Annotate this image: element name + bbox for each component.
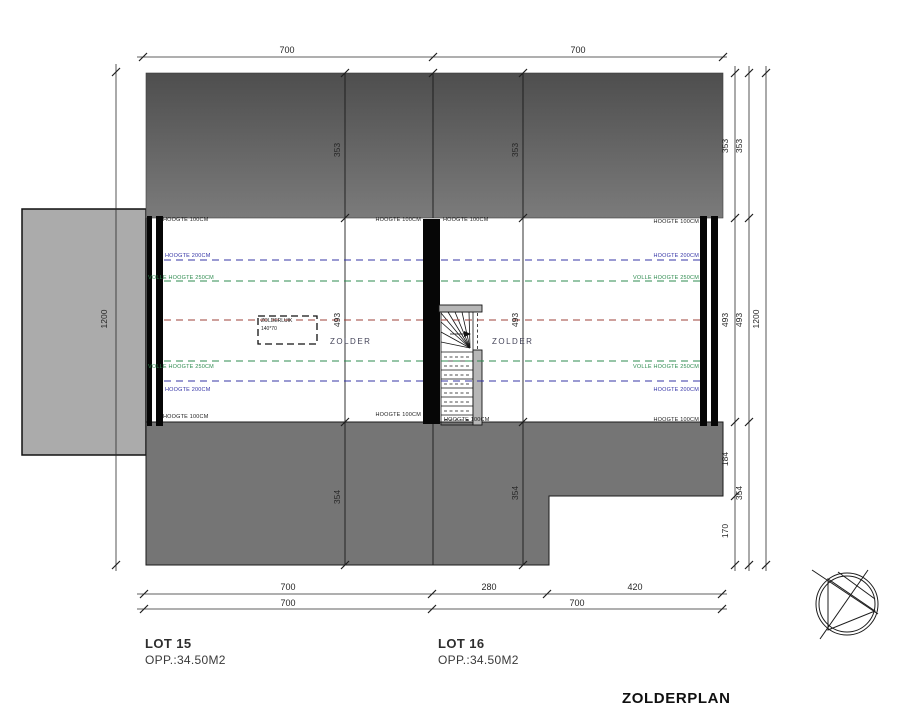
dim-roofbottom-354-right: 354 bbox=[510, 486, 520, 500]
lot16-right-wall-outer bbox=[711, 216, 718, 426]
attic-plan-drawing: ZOLDERLUIK 140*70 ZOLDER ZOLDER HOOGTE 1… bbox=[0, 0, 904, 728]
h250-label: VOLLE HOOGTE 250CM bbox=[633, 364, 699, 370]
h100-label: HOOGTE 100CM bbox=[654, 219, 700, 225]
lot16-title: LOT 16 bbox=[438, 636, 484, 651]
dim-bottom-700: 700 bbox=[280, 582, 295, 592]
dim-top-700-right: 700 bbox=[570, 45, 585, 55]
staircase bbox=[439, 305, 482, 425]
h100-label: HOOGTE 100CM bbox=[444, 417, 490, 423]
dim-floor-493-right: 493 bbox=[510, 313, 520, 327]
dim-right-184: 184 bbox=[720, 452, 730, 466]
dim-right2-493: 493 bbox=[734, 313, 744, 327]
h250-label: VOLLE HOOGTE 250CM bbox=[148, 364, 214, 370]
h100-label: HOOGTE 100CM bbox=[163, 414, 209, 420]
dim-rooftop-353-left: 353 bbox=[332, 143, 342, 157]
lot-info: LOT 15 OPP.:34.50M2 LOT 16 OPP.:34.50M2 bbox=[145, 636, 519, 667]
dim-bottom-280: 280 bbox=[481, 582, 496, 592]
hatch-label: ZOLDERLUIK bbox=[261, 318, 293, 324]
h200-label: HOOGTE 200CM bbox=[165, 253, 211, 259]
lot16-room-label: ZOLDER bbox=[492, 337, 533, 346]
dim-bottom2-700-right: 700 bbox=[569, 598, 584, 608]
north-arrow-icon bbox=[812, 570, 878, 639]
h100-label: HOOGTE 100CM bbox=[654, 417, 700, 423]
dim-right-493: 493 bbox=[720, 313, 730, 327]
h100-label: HOOGTE 100CM bbox=[376, 412, 422, 418]
h100-label: HOOGTE 100CM bbox=[163, 217, 209, 223]
lot16-area: OPP.:34.50M2 bbox=[438, 653, 519, 667]
page-title: ZOLDERPLAN bbox=[622, 690, 731, 707]
h250-label: VOLLE HOOGTE 250CM bbox=[148, 275, 214, 281]
floorplan-page: ZOLDERLUIK 140*70 ZOLDER ZOLDER HOOGTE 1… bbox=[0, 0, 904, 728]
h200-label: HOOGTE 200CM bbox=[165, 387, 211, 393]
dim-roofbottom-354-left: 354 bbox=[332, 490, 342, 504]
bottom-dimension-line-2: 700 700 bbox=[137, 598, 727, 613]
top-roof-plane bbox=[146, 73, 723, 218]
dim-rooftop-353-right: 353 bbox=[510, 143, 520, 157]
lot16-right-wall-inner bbox=[700, 216, 707, 426]
bottom-roof-plane bbox=[146, 422, 723, 565]
h250-label: VOLLE HOOGTE 250CM bbox=[633, 275, 699, 281]
party-wall bbox=[423, 219, 440, 424]
lot15-left-wall-inner bbox=[156, 216, 163, 426]
dim-floor-493-left: 493 bbox=[332, 313, 342, 327]
dim-right-170: 170 bbox=[720, 524, 730, 538]
stair-winder-steps bbox=[441, 312, 470, 348]
h100-label: HOOGTE 100CM bbox=[376, 217, 422, 223]
stair-straight-treads bbox=[441, 352, 473, 420]
right-outer-dimension-line: 1200 bbox=[751, 66, 770, 571]
dim-right-353: 353 bbox=[720, 139, 730, 153]
annex-rect bbox=[22, 209, 146, 455]
lot15-left-wall-outer bbox=[147, 216, 152, 426]
stair-shaft bbox=[441, 312, 473, 425]
dim-right2-353: 353 bbox=[734, 139, 744, 153]
dim-left-1200: 1200 bbox=[99, 309, 109, 328]
walls bbox=[147, 216, 718, 426]
dim-top-700-left: 700 bbox=[279, 45, 294, 55]
bottom-dimension-line-1: 700 280 420 bbox=[137, 582, 727, 598]
hatch-size-label: 140*70 bbox=[261, 326, 277, 332]
lot15-area: OPP.:34.50M2 bbox=[145, 653, 226, 667]
left-annex-volume bbox=[22, 209, 146, 455]
top-dimension-line: 700 700 bbox=[137, 45, 727, 61]
dim-right-1200: 1200 bbox=[751, 309, 761, 328]
dim-right2-354: 354 bbox=[734, 486, 744, 500]
dim-bottom2-700-left: 700 bbox=[280, 598, 295, 608]
h200-label: HOOGTE 200CM bbox=[654, 387, 700, 393]
stair-top-wall bbox=[439, 305, 482, 312]
lot15-room-label: ZOLDER bbox=[330, 337, 371, 346]
h100-label: HOOGTE 100CM bbox=[443, 217, 489, 223]
h200-label: HOOGTE 200CM bbox=[654, 253, 700, 259]
lot15-title: LOT 15 bbox=[145, 636, 191, 651]
dim-bottom-420: 420 bbox=[627, 582, 642, 592]
